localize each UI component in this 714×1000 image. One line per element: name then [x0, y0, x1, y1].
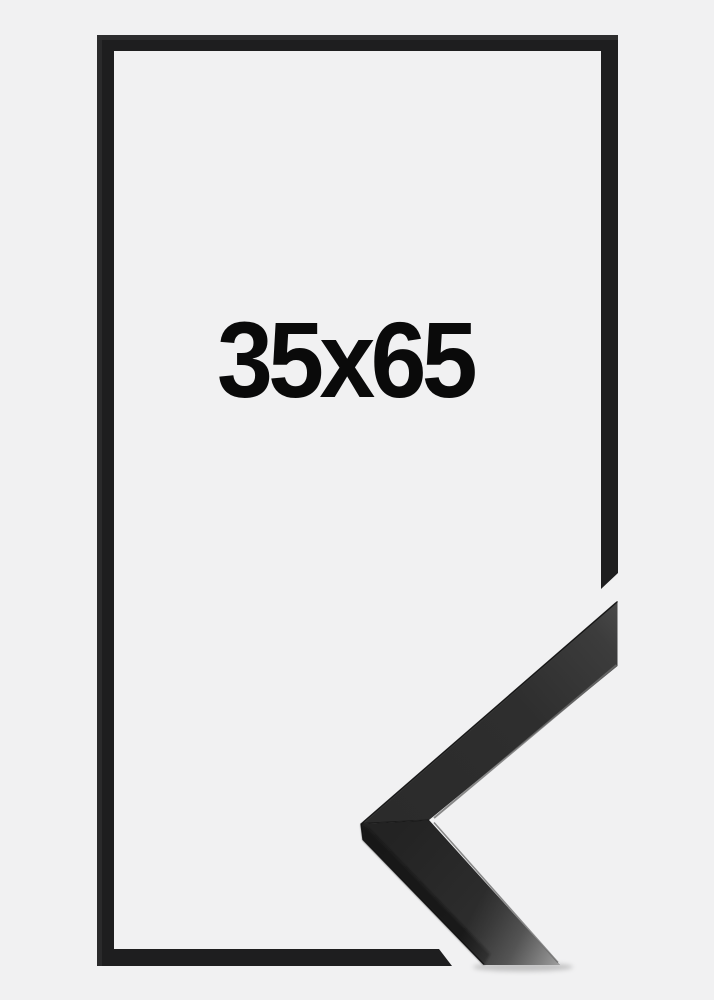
- frame-graphic: [0, 0, 714, 1000]
- size-label: 35x65: [13, 306, 677, 414]
- frame-product-image: 35x65: [0, 0, 714, 1000]
- frame-outline-top-highlight: [97, 35, 618, 40]
- frame-outline: [97, 35, 618, 966]
- frame-outline-bottom-bar: [97, 949, 452, 966]
- frame-corner-detail-photo: [361, 601, 618, 972]
- frame-outline-left-highlight: [97, 35, 102, 966]
- molding-end-sheen: [361, 820, 560, 965]
